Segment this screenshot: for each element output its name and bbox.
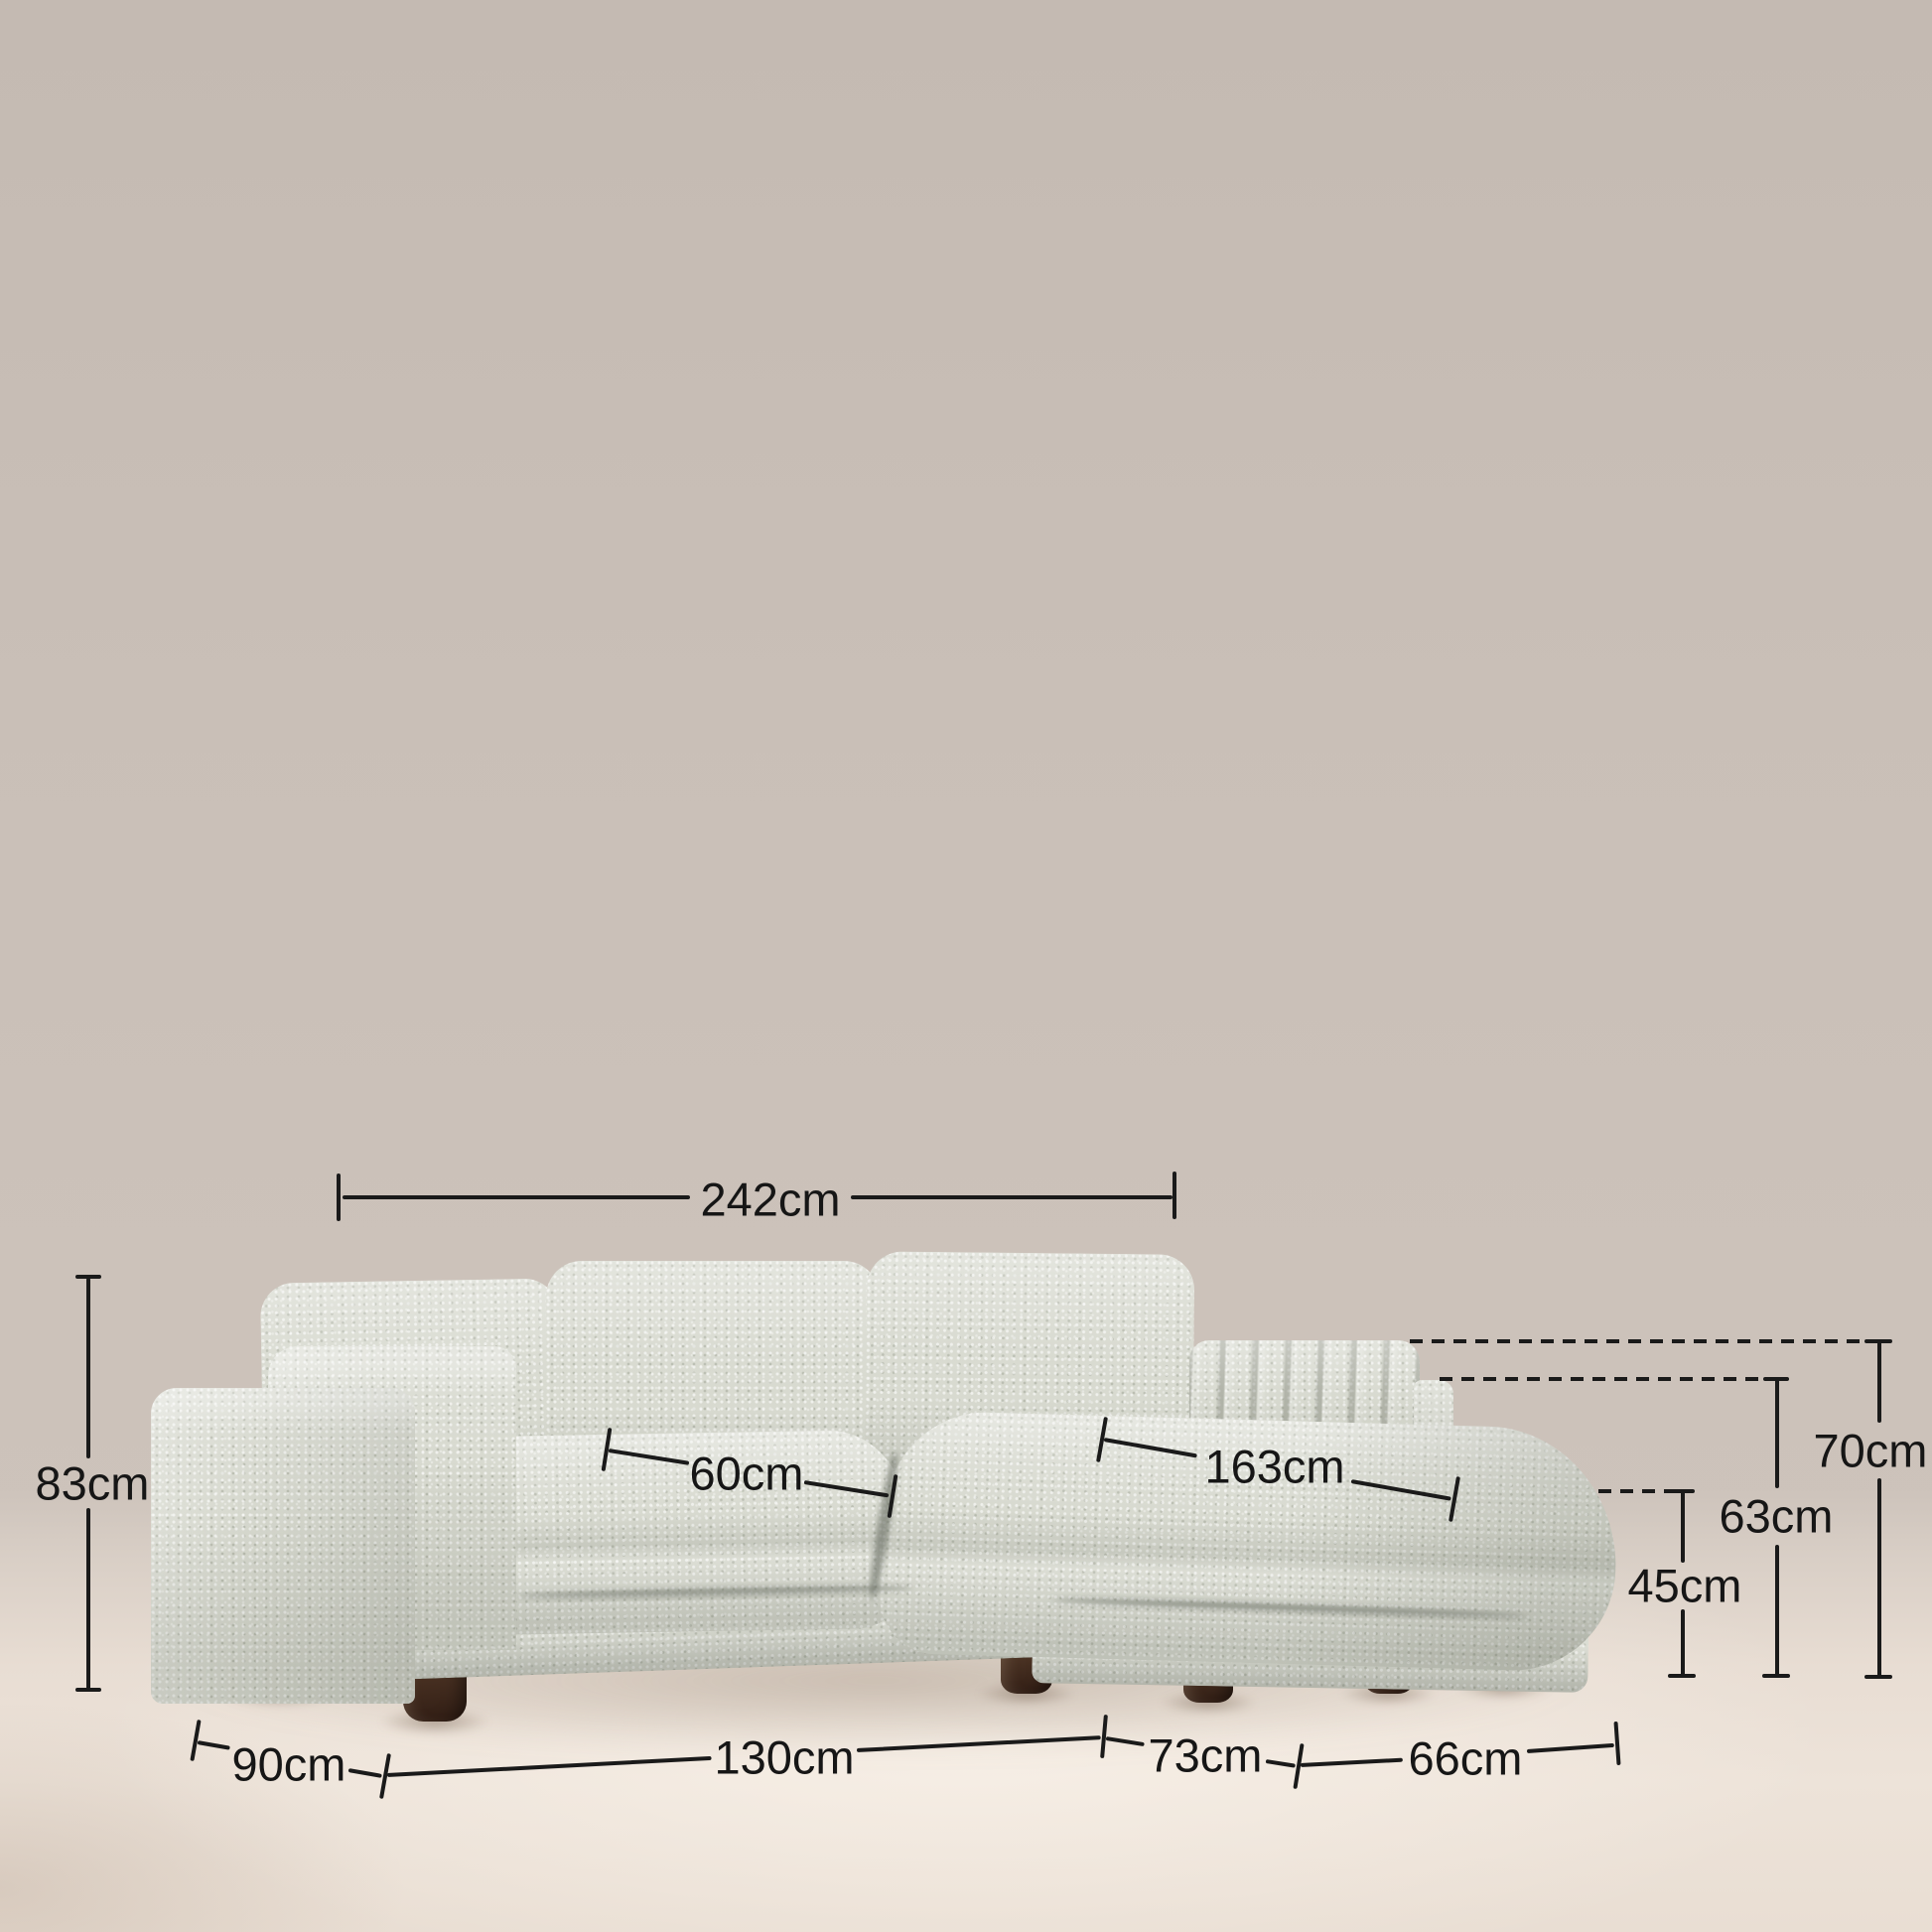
arm-height-label: 70cm (1814, 1424, 1928, 1478)
overall-height-line (86, 1278, 90, 1458)
mid-width-label: 73cm (1149, 1728, 1263, 1783)
sofa-dimension-diagram: 242cm 83cm 60cm 163cm 70cm 63cm 45cm 90c… (0, 0, 1932, 1932)
overall-width-label: 242cm (700, 1173, 840, 1227)
left-arm-outer (151, 1388, 415, 1704)
arm-height-line (1877, 1341, 1881, 1423)
seat-height-line (1681, 1491, 1685, 1563)
chaise-length-label: 163cm (1204, 1440, 1344, 1494)
overall-height-line (86, 1508, 90, 1690)
arm-height-tick-bottom (1864, 1675, 1892, 1679)
side-height-label: 63cm (1720, 1489, 1834, 1544)
side-height-dashed-line (1440, 1377, 1779, 1381)
seat-height-label: 45cm (1628, 1559, 1742, 1613)
overall-height-label: 83cm (36, 1456, 150, 1511)
side-height-line (1775, 1379, 1779, 1488)
side-height-line (1775, 1545, 1779, 1676)
front-width-label: 130cm (714, 1730, 854, 1785)
seat-height-tick-bottom (1668, 1674, 1696, 1678)
seat-height-line (1681, 1609, 1685, 1676)
arm-height-line (1877, 1478, 1881, 1677)
arm-height-dashed-line (1410, 1339, 1882, 1343)
overall-width-tick-left (337, 1173, 341, 1221)
overall-width-tick-right (1173, 1172, 1176, 1219)
seat-depth-label: 60cm (690, 1447, 804, 1501)
overall-height-tick-bottom (75, 1688, 101, 1692)
chaise-width-label: 66cm (1409, 1731, 1523, 1786)
overall-width-line (851, 1195, 1173, 1199)
side-height-tick-bottom (1762, 1674, 1790, 1678)
side-depth-label: 90cm (232, 1737, 346, 1792)
overall-width-line (343, 1195, 690, 1199)
